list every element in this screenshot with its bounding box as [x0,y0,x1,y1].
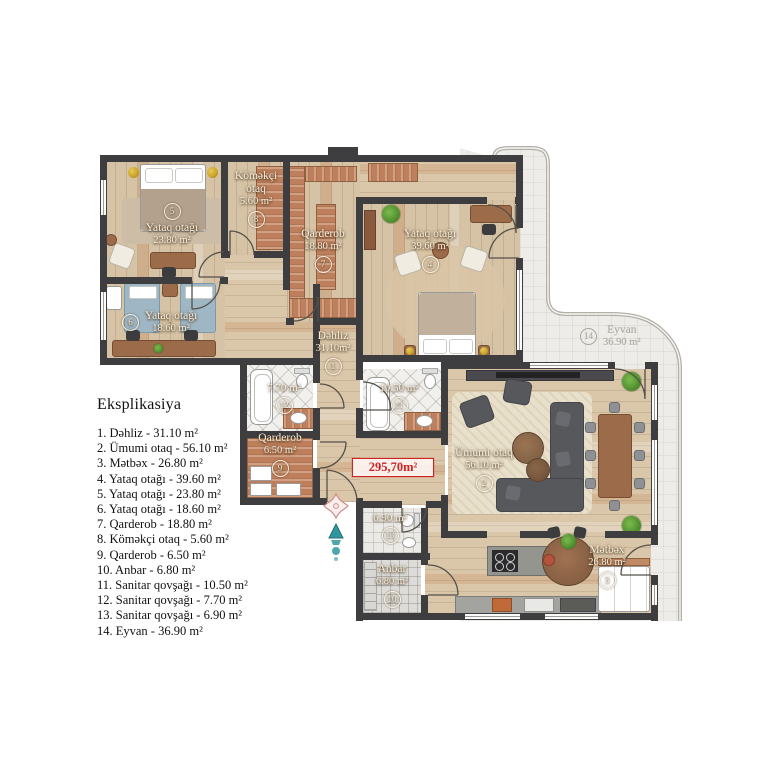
room-name: Yataq otağı [385,228,475,241]
room-label-hallway-1: Dəhliz 31.10m² 1 [302,330,364,375]
wall [356,431,448,438]
room-number: 9 [272,460,289,477]
wall [100,358,320,365]
desk-chair [482,224,496,235]
wall [598,613,658,620]
fridge [560,598,596,612]
wall [421,595,428,613]
wall [221,251,230,258]
floor-hall-column [317,362,360,502]
dining-chair [609,500,620,511]
room-name: Mətbəx [572,544,642,557]
window [651,585,658,605]
room-number: 6 [122,314,139,331]
room-name: Qarderob [288,228,358,241]
room-number: 10 [384,591,401,608]
room-name: Eyvan [603,324,641,337]
room-number: 2 [476,475,493,492]
wardrobe-unit [368,163,418,182]
room-name: Qarderob [246,432,314,445]
room-number: 7 [315,256,332,273]
plant [622,372,641,391]
decor-bowl [543,554,555,566]
legend-item: 2. Ümumi otaq - 56.10 m² [97,441,248,456]
room-area: 23.80 m² [127,235,217,247]
legend-item: 7. Qarderob - 18.80 m² [97,517,248,532]
lamp [406,347,414,355]
burner [495,553,504,562]
legend: Eksplikasiya 1. Dəhliz - 31.10 m² 2. Ümu… [97,396,248,639]
desk [470,205,512,223]
room-label-bath-11: 10.50 m² 11 [368,382,430,414]
wall [313,408,320,440]
room-label-bedroom-4: Yataq otağı 39.60 m² 4 [385,228,475,273]
window [100,180,107,215]
wall [100,277,192,284]
wall [421,508,428,565]
cabinet [106,286,122,310]
total-area-badge: 295,70m² [352,458,434,477]
wall [441,362,448,445]
dining-chair [585,478,596,489]
dining-chair [609,402,620,413]
room-label-bedroom-6: 6 Yataq otağı 18.60 m² [122,310,197,335]
legend-item: 5. Yataq otağı - 23.80 m² [97,487,248,502]
lamp [207,167,218,178]
wall [651,575,658,585]
stove [492,550,518,572]
room-area: 6.80 m² [363,576,421,588]
room-number: 13 [382,527,399,544]
window [100,292,107,340]
wall [356,355,523,362]
pillow [145,168,173,183]
wall [608,362,615,369]
room-number: 3 [599,572,616,589]
burner [506,562,515,571]
wall [520,531,552,538]
room-area: 18.80 m² [288,241,358,253]
armchair [502,378,533,406]
room-number: 11 [391,397,408,414]
wall [516,155,523,228]
oven [492,598,512,612]
room-name: Ümumi otaq [438,447,530,460]
room-number: 12 [276,397,293,414]
legend-item: 6. Yataq otağı - 18.60 m² [97,502,248,517]
pillow [449,339,473,354]
room-label-balcony-14: 14 Eyvan 36.90 m² [580,324,641,349]
room-name: Köməkçi [226,170,286,183]
room-area: 18.60 m² [145,323,197,335]
wall [286,318,294,325]
room-area: 56.10 m² [438,460,530,472]
lamp [480,347,488,355]
legend-item: 3. Mətbəx - 26.80 m² [97,456,248,471]
room-area: 10.50 m² [368,382,430,394]
wall [516,350,523,362]
wall [220,277,228,284]
wardrobe-unit [305,166,357,182]
floor-vestibule [225,255,287,362]
room-label-bedroom-5: 5 Yataq otağı 23.80 m² [127,200,217,247]
wall [100,340,107,365]
room-label-bath-12: 7.70 m² 12 [254,382,314,414]
room-label-wardrobe-7: Qarderob 18.80 m² 7 [288,228,358,273]
room-name: Dəhliz [302,330,364,343]
pillow [185,286,213,299]
window [651,385,658,420]
wall [651,605,658,621]
window [465,613,520,620]
sink [416,415,433,427]
wall [356,613,465,620]
vent-shaft [328,147,358,156]
floor-plan-canvas: 5 Yataq otağı 23.80 m² Köməkçi otaq 5.60… [0,0,768,768]
pillow [129,286,157,299]
window [516,270,523,350]
legend-item: 11. Sanitar qovşağı - 10.50 m² [97,578,248,593]
wall [100,155,523,162]
dining-table [598,414,632,498]
sofa-cushion [555,451,571,467]
wall [448,531,487,538]
nightstand [162,283,178,297]
legend-item: 13. Sanitar qovşağı - 6.90 m² [97,608,248,623]
wall [441,495,448,538]
legend-item: 12. Sanitar qovşağı - 7.70 m² [97,593,248,608]
room-label-storage-10: Anbar 6.80 m² 10 [363,563,421,608]
wall [651,362,658,385]
room-label-auxroom-8: Köməkçi otaq 5.60 m² 8 [226,170,286,228]
room-number: 5 [164,203,181,220]
burner [506,553,515,562]
storage-box [250,483,272,496]
legend-item: 1. Dəhliz - 31.10 m² [97,426,248,441]
room-area: 6.90 m² [362,512,418,524]
wall [520,613,545,620]
dining-chair [634,478,645,489]
wall [313,468,320,498]
room-name: otaq [226,183,286,196]
wall [651,420,658,440]
wall [651,525,658,545]
room-label-bath-13: 6.90 m² 13 [362,512,418,544]
room-name: Yataq otağı [145,310,197,323]
pillow [175,168,203,183]
room-area: 39.60 m² [385,241,475,253]
room-area: 26.80 m² [572,557,642,569]
room-number: 4 [422,256,439,273]
legend-item: 4. Yataq otağı - 39.60 m² [97,472,248,487]
pillow [423,339,447,354]
wardrobe-unit [289,298,357,318]
sofa-cushion [555,411,572,428]
wall [356,197,487,204]
bed [418,292,476,358]
room-number: 8 [248,211,265,228]
window [651,440,658,525]
legend-item: 10. Anbar - 6.80 m² [97,563,248,578]
lamp [128,167,139,178]
room-area: 31.10m² [302,343,364,355]
room-area: 7.70 m² [254,382,314,394]
legend-title: Eksplikasiya [97,396,248,414]
legend-item: 14. Eyvan - 36.90 m² [97,624,248,639]
desk [112,340,216,357]
room-label-livingroom-2: Ümumi otaq 56.10 m² 2 [438,447,530,492]
room-name: Yataq otağı [127,222,217,235]
room-number: 1 [325,358,342,375]
plant [154,344,163,353]
room-name: Anbar [363,563,421,576]
kitchen-sink [524,598,554,612]
wall [240,498,327,505]
room-area: 5.60 m² [226,196,286,208]
plant [382,205,400,223]
wall [100,155,107,180]
room-label-wardrobe-9: Qarderob 6.50 m² 9 [246,432,314,477]
dining-chair [634,422,645,433]
room-label-kitchen-3: Mətbəx 26.80 m² 3 [572,544,642,589]
window [530,362,608,369]
dining-chair [585,450,596,461]
wall [516,258,523,270]
storage-box [276,483,301,496]
room-area: 36.90 m² [603,337,641,349]
wall [356,408,363,437]
wall [100,215,107,292]
wall [356,553,430,560]
dining-chair [585,422,596,433]
wall [448,362,530,369]
blanket [419,293,475,335]
dining-chair [634,450,645,461]
tall-cabinet [364,210,376,250]
window [545,613,598,620]
legend-item: 8. Köməkçi otaq - 5.60 m² [97,532,248,547]
burner [495,562,504,571]
room-area: 6.50 m² [246,445,314,457]
legend-item: 9. Qarderob - 6.50 m² [97,548,248,563]
room-number: 14 [580,328,597,345]
tv [496,372,580,378]
